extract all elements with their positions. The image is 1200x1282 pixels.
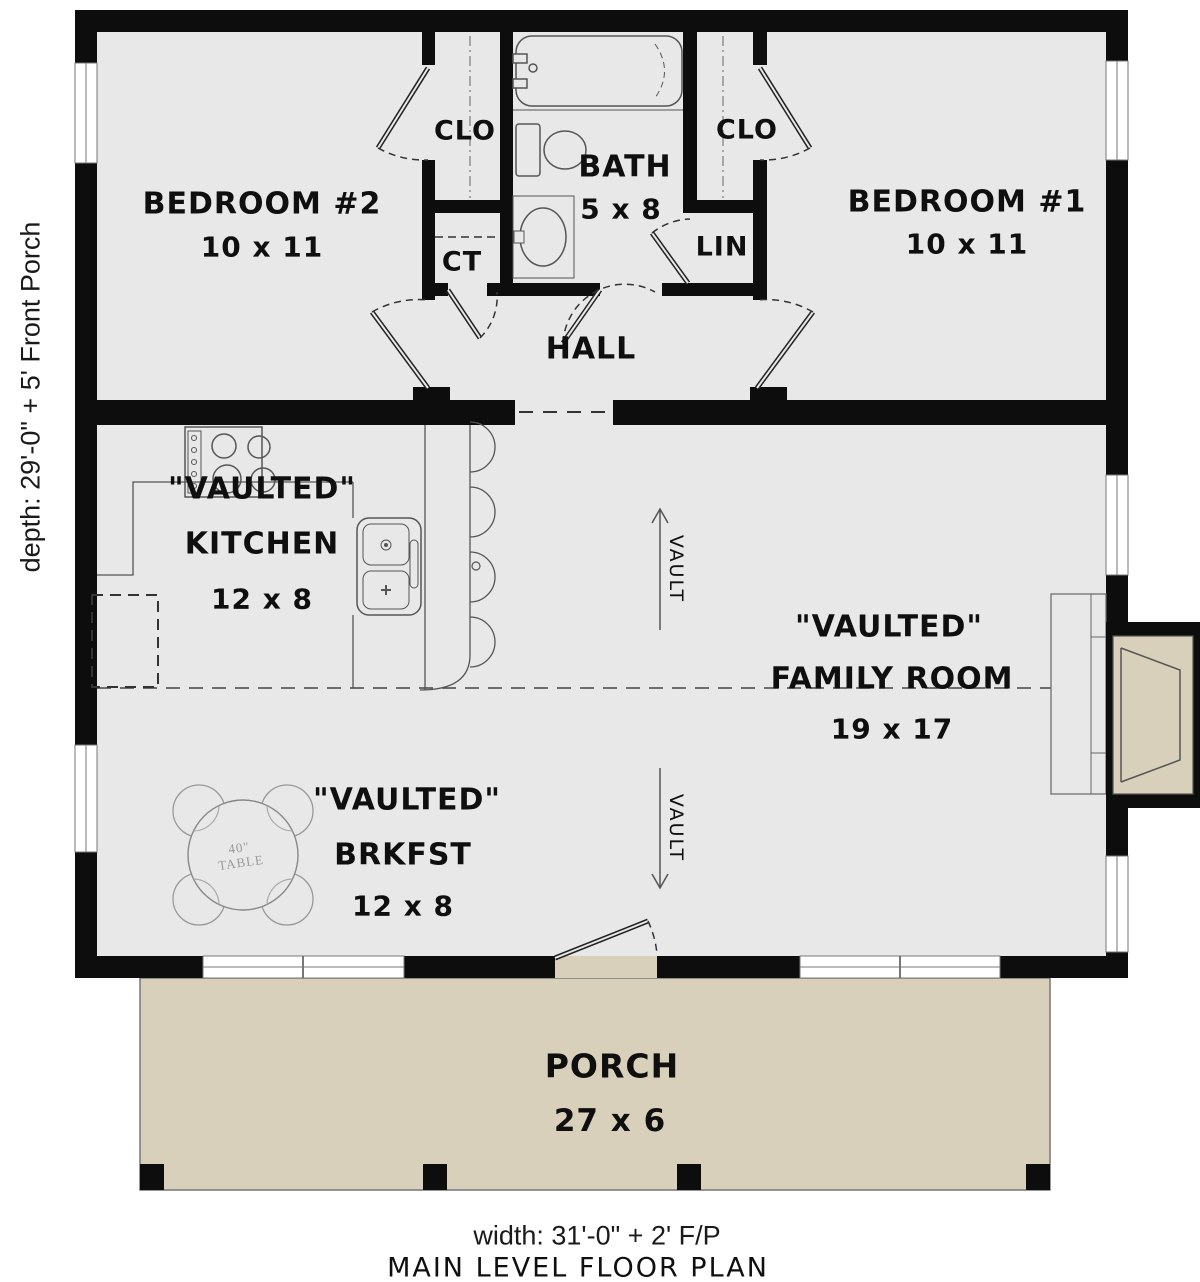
closet-right-label: CLO (716, 115, 778, 146)
bath-sink (520, 208, 566, 266)
porch-size-label: 27 x 6 (554, 1103, 666, 1139)
width-dimension-label: width: 31'-0" + 2' F/P (473, 1221, 720, 1252)
table-label: 40" TABLE (215, 837, 265, 873)
porch-post (677, 1164, 701, 1190)
kitchen-qualifier-label: "VAULTED" (168, 472, 356, 507)
porch-post (140, 1164, 164, 1190)
tub-faucet (513, 54, 527, 63)
toilet-tank (516, 124, 540, 176)
porch-post (1026, 1164, 1050, 1190)
family-room-qualifier-label: "VAULTED" (795, 610, 983, 645)
breakfast-name-label: BRKFST (334, 838, 472, 873)
vault-upper-label: VAULT (665, 535, 687, 603)
kitchen-size-label: 12 x 8 (211, 583, 313, 616)
floor-plan-page: BEDROOM #2 10 x 11 BEDROOM #1 10 x 11 CL… (0, 0, 1200, 1282)
fireplace (1051, 594, 1200, 808)
bedroom2-size-label: 10 x 11 (201, 231, 324, 264)
porch-door-opening (555, 956, 657, 978)
breakfast-qualifier-label: "VAULTED" (313, 783, 501, 818)
family-room-name-label: FAMILY ROOM (771, 662, 1014, 697)
hall-label: HALL (546, 332, 637, 367)
bedroom1-size-label: 10 x 11 (906, 228, 1029, 261)
vault-lower-label: VAULT (665, 794, 687, 862)
closet-left-label: CLO (434, 116, 496, 147)
plan-title: MAIN LEVEL FLOOR PLAN (387, 1253, 769, 1282)
bedroom2-name-label: BEDROOM #2 (143, 187, 382, 222)
hearth (1051, 594, 1106, 794)
bedroom1-name-label: BEDROOM #1 (848, 185, 1087, 220)
depth-dimension-label: depth: 29'-0" + 5' Front Porch (16, 222, 47, 573)
breakfast-size-label: 12 x 8 (352, 890, 454, 923)
linen-closet-label: LIN (696, 232, 749, 263)
bath-name-label: BATH (578, 150, 671, 185)
family-room-size-label: 19 x 17 (831, 713, 954, 746)
bath-size-label: 5 x 8 (580, 193, 662, 226)
porch-post (423, 1164, 447, 1190)
kitchen-name-label: KITCHEN (185, 527, 340, 562)
coat-closet-label: CT (442, 247, 482, 278)
porch-name-label: PORCH (545, 1047, 680, 1086)
